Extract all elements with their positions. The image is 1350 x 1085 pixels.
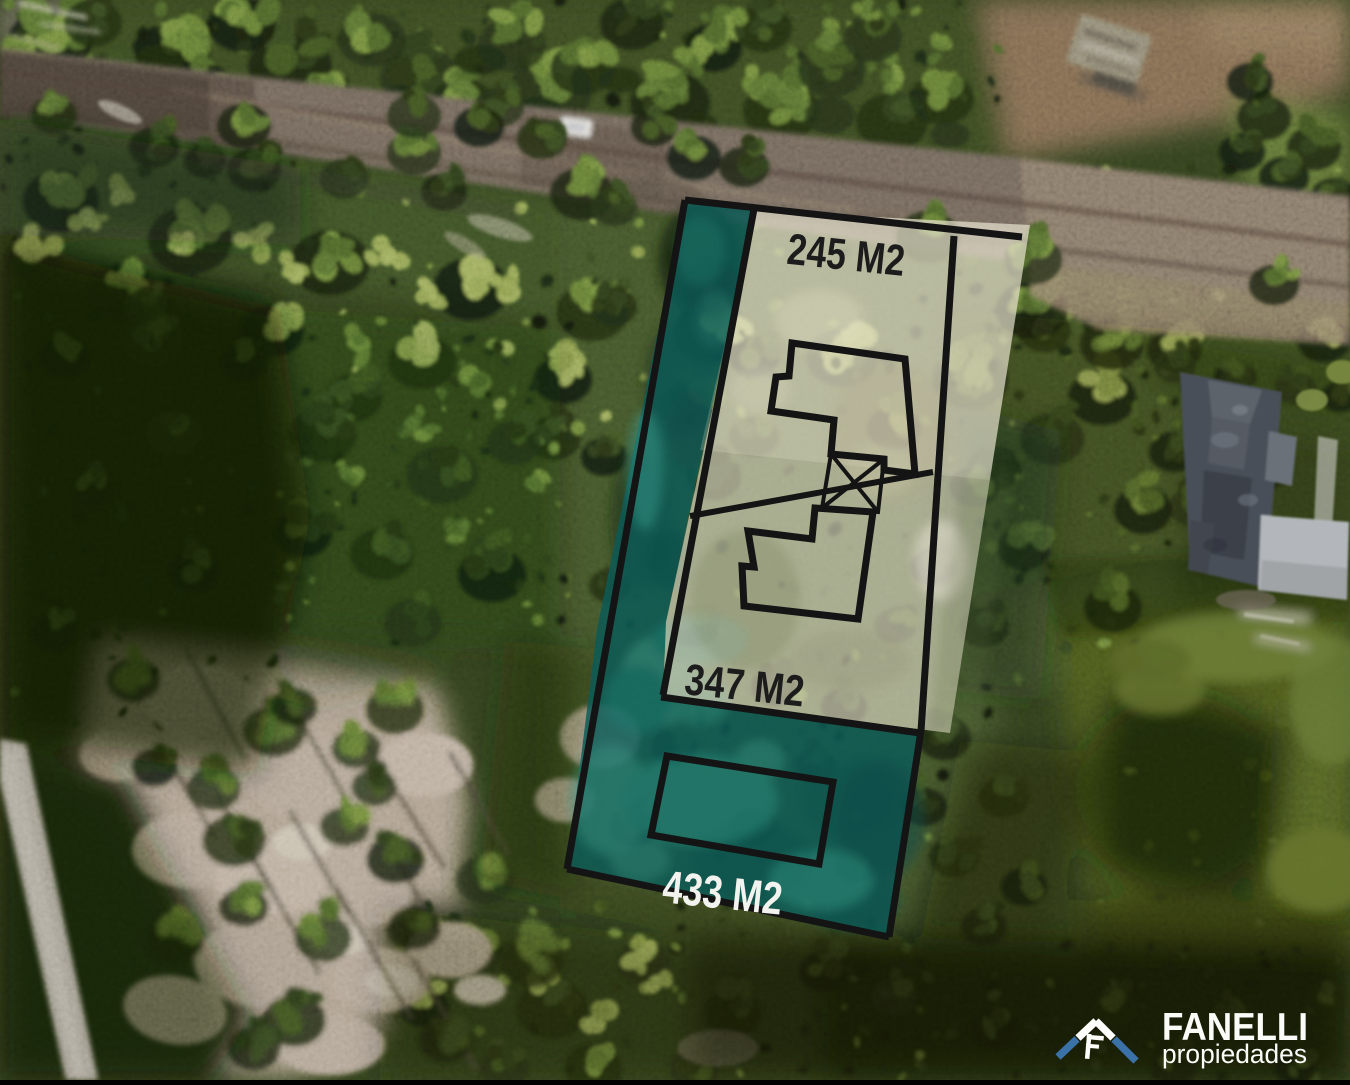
svg-text:propiedades: propiedades (1162, 1039, 1307, 1069)
